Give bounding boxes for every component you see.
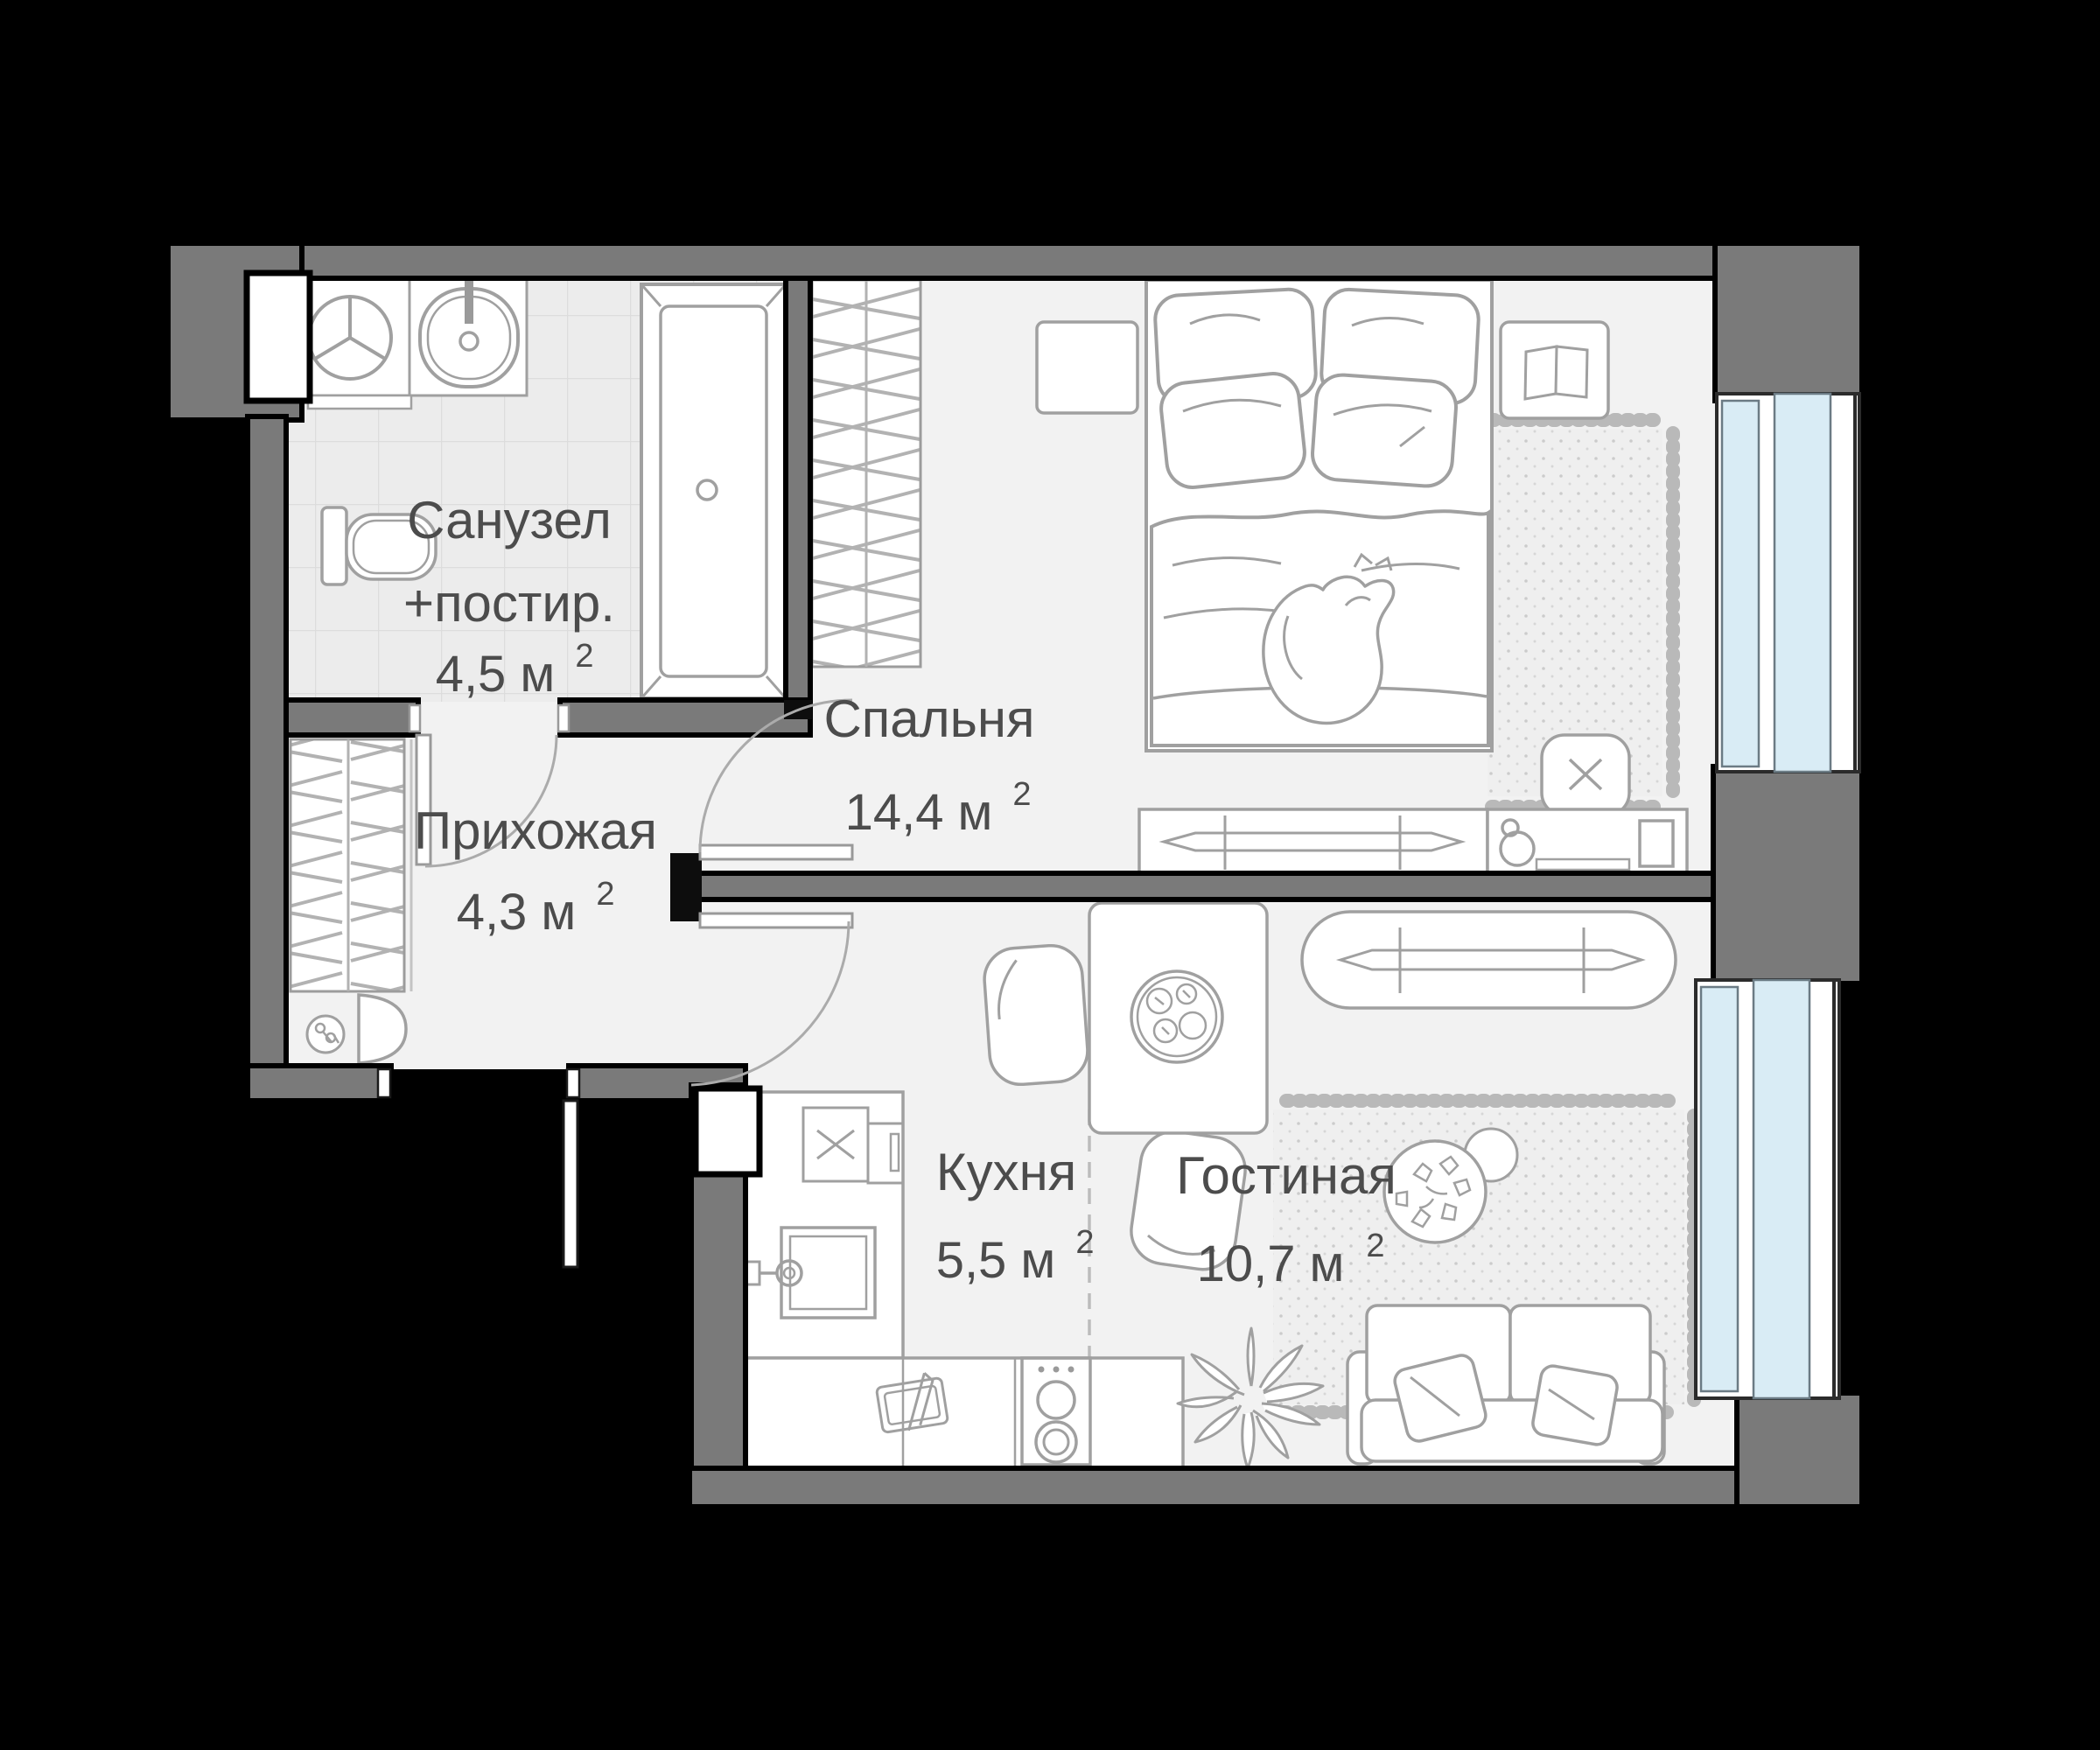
- wardrobe-icon: [812, 280, 920, 667]
- wall-dividing: [698, 873, 1731, 899]
- window-icon: [1717, 394, 1859, 772]
- dresser-icon: [1139, 809, 1487, 875]
- floor-plan: Санузел +постир. 4,5 м 2 Спальня 14,4 м …: [0, 0, 2100, 1750]
- window-icon: [1696, 980, 1839, 1398]
- desk-chair-icon: [1542, 735, 1629, 815]
- hallway-area-sup: 2: [596, 876, 614, 913]
- kitchen-area-sup: 2: [1075, 1224, 1094, 1261]
- wall-window-pier: [1713, 766, 1862, 983]
- wall-bathroom-hall-right: [560, 700, 810, 735]
- hallway-area: 4,3 м: [457, 884, 577, 941]
- bedroom-name: Спальня: [823, 689, 1034, 748]
- kitchen-bottom-counter-icon: [744, 1358, 1183, 1468]
- kitchen-name: Кухня: [936, 1143, 1077, 1201]
- bathroom-area-sup: 2: [575, 638, 593, 675]
- bathroom-name-line2: +постир.: [403, 574, 615, 633]
- living-name: Гостиная: [1176, 1146, 1396, 1205]
- hall-closet-icon: [290, 739, 411, 991]
- wall-top-right-block: [1715, 243, 1862, 401]
- keys-icon: [307, 1016, 344, 1053]
- kitchen-area: 5,5 м: [936, 1232, 1056, 1289]
- sofa-icon: [1347, 1305, 1664, 1464]
- nightstand-book-icon: [1501, 322, 1608, 418]
- wall-bathroom-bedroom: [786, 278, 810, 716]
- desk-icon: [1487, 809, 1687, 875]
- bathtub-icon: [641, 284, 786, 698]
- floor-plan-canvas: Санузел +постир. 4,5 м 2 Спальня 14,4 м …: [0, 0, 2100, 1750]
- dining-chair-icon: [983, 943, 1090, 1086]
- bathroom-name-line1: Санузел: [407, 491, 612, 549]
- wall-left: [248, 416, 286, 1101]
- shaft-icon: [247, 273, 310, 401]
- bathroom-area: 4,5 м: [436, 646, 556, 703]
- shaft-icon: [696, 1088, 759, 1174]
- living-area-sup: 2: [1366, 1228, 1384, 1264]
- bedroom-area-sup: 2: [1012, 776, 1031, 813]
- kitchen-counter-icon: [744, 1092, 903, 1358]
- bedroom-area: 14,4 м: [845, 784, 993, 841]
- living-area: 10,7 м: [1197, 1235, 1345, 1292]
- nightstand-icon: [1037, 322, 1137, 413]
- wall-entry-left: [248, 1066, 391, 1101]
- bed-icon: [1146, 280, 1492, 751]
- entry-door-icon: [378, 1069, 579, 1267]
- wall-bathroom-hall-left: [286, 700, 418, 735]
- tv-console-icon: [1302, 912, 1676, 1008]
- hallway-name: Прихожая: [414, 801, 657, 860]
- label-bathroom: Санузел +постир. 4,5 м 2: [403, 491, 615, 703]
- wall-bottom-right-block: [1737, 1393, 1862, 1507]
- door-post: [670, 853, 702, 921]
- wall-bottom: [689, 1468, 1829, 1507]
- wall-top: [168, 243, 1717, 278]
